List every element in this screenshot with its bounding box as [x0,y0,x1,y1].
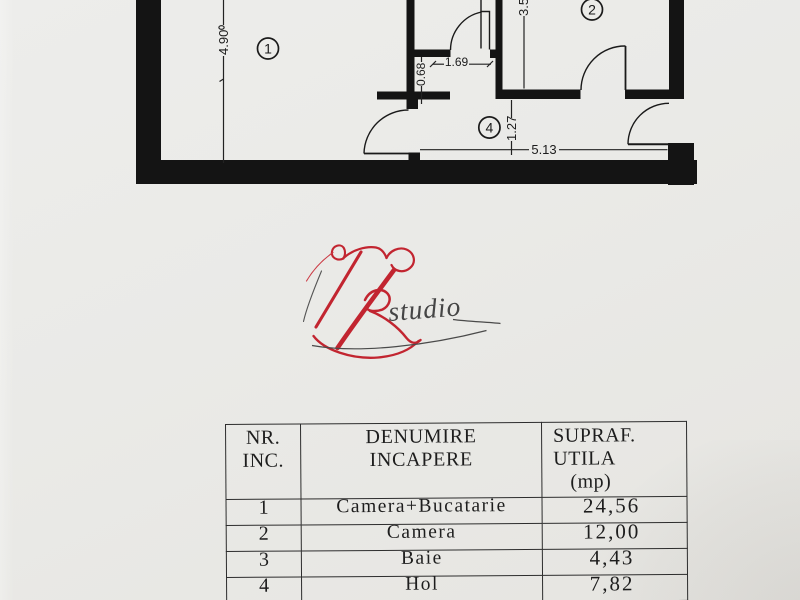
svg-text:4: 4 [486,120,494,136]
svg-text:2: 2 [588,2,596,18]
svg-text:5.13: 5.13 [531,142,556,157]
svg-text:1: 1 [264,41,272,57]
svg-text:1.69: 1.69 [445,55,469,69]
svg-text:1.27: 1.27 [504,116,519,141]
svg-text:4.90: 4.90 [216,30,231,55]
svg-text:3.55: 3.55 [516,0,531,16]
svg-text:0.68: 0.68 [414,62,428,86]
svg-text:studio: studio [387,290,461,327]
